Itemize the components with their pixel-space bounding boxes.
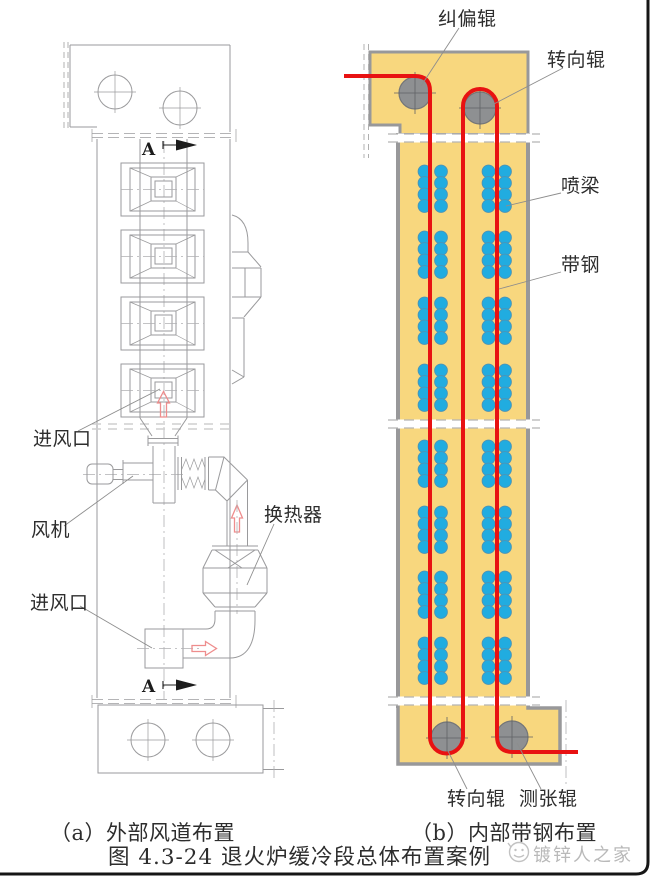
spray-nozzle-dot: [482, 200, 495, 213]
spray-nozzle-dot: [499, 177, 512, 190]
spray-nozzle-dot: [435, 165, 448, 178]
spray-nozzle-dot: [482, 309, 495, 322]
spray-nozzle-dot: [482, 440, 495, 453]
section-a-label: A: [141, 677, 156, 697]
continuation-dashes: [364, 44, 369, 158]
spray-nozzle-dot: [482, 518, 495, 531]
spray-nozzle-dot: [499, 188, 512, 201]
spray-nozzle-dot: [435, 463, 448, 476]
section-arrowhead: [176, 680, 197, 691]
bottom-header-box: [92, 695, 284, 780]
spray-nozzle-dot: [499, 475, 512, 488]
spray-nozzle-dot: [482, 672, 495, 685]
spray-nozzle-dot: [435, 309, 448, 322]
flow-arrow-right: [192, 642, 217, 656]
spray-nozzle-dot: [435, 660, 448, 673]
spray-nozzle-dot: [435, 440, 448, 453]
spray-nozzle-dot: [499, 399, 512, 412]
spray-nozzle-dot: [482, 475, 495, 488]
nozzle-box: [121, 297, 204, 350]
spray-nozzle-dot: [499, 200, 512, 213]
fan: [83, 460, 184, 484]
spray-nozzle-dot: [435, 320, 448, 333]
spray-nozzle-dot: [435, 266, 448, 279]
spray-nozzle-dot: [482, 297, 495, 310]
watermark-logo-icon: [510, 843, 529, 862]
spray-nozzle-dot: [482, 177, 495, 190]
spray-nozzle-dot: [499, 506, 512, 519]
spray-nozzle-dot: [499, 376, 512, 389]
hopper-funnel: [140, 418, 187, 503]
flange-joint: [92, 134, 236, 138]
spray-nozzle-dot: [435, 594, 448, 607]
spray-nozzle-dot: [482, 376, 495, 389]
spray-nozzle-dot: [482, 231, 495, 244]
spray-nozzle-dot: [499, 463, 512, 476]
continuation-dashes: [64, 42, 68, 130]
air-inlet-top-label: 进风口: [33, 428, 92, 450]
leader-line: [80, 606, 152, 648]
spray-nozzle-dot: [435, 583, 448, 596]
spray-nozzle-dot: [435, 177, 448, 190]
spray-nozzle-dot: [435, 254, 448, 267]
spray-nozzle-dot: [435, 376, 448, 389]
spray-nozzle-dot: [499, 364, 512, 377]
duct-walls: [92, 139, 236, 699]
fan-casing: [123, 463, 153, 480]
spray-nozzle-dot: [482, 452, 495, 465]
spray-nozzle-dot: [482, 660, 495, 673]
spray-nozzle-dot: [435, 452, 448, 465]
labels-a: 进风口 风机 换热器 进风口: [30, 389, 323, 648]
diagram-svg: A A 进风口 风机: [0, 0, 650, 881]
flow-arrow-up: [158, 392, 170, 418]
spray-nozzle-dot: [482, 387, 495, 400]
spray-nozzle-dot: [499, 332, 512, 345]
nozzle-boxes: [121, 163, 204, 417]
correction-roller-label: 纠偏辊: [438, 8, 497, 30]
furnace-bottom-header: [398, 700, 560, 764]
spray-nozzle-dot: [482, 188, 495, 201]
spray-nozzle-dot: [482, 506, 495, 519]
section-marker-top: A: [141, 140, 197, 161]
spray-nozzle-dot: [482, 606, 495, 619]
heat-exchanger: [183, 546, 267, 658]
spray-nozzle-dot: [499, 583, 512, 596]
spray-nozzle-dot: [435, 606, 448, 619]
spray-nozzle-dot: [499, 529, 512, 542]
spray-nozzle-dot: [499, 254, 512, 267]
spray-nozzle-dot: [482, 165, 495, 178]
tension-roller-label: 测张辊: [519, 788, 578, 810]
fan-motor: [87, 464, 113, 484]
figure-title: 图 4.3-24 退火炉缓冷段总体布置案例: [108, 845, 491, 870]
spray-nozzle-dot: [499, 297, 512, 310]
turn-roller-bottom-label: 转向辊: [447, 788, 506, 810]
spray-nozzle-dot: [499, 165, 512, 178]
spray-nozzle-dot: [482, 399, 495, 412]
spray-nozzle-dot: [482, 364, 495, 377]
spray-nozzle-dot: [499, 452, 512, 465]
spray-nozzle-dot: [482, 332, 495, 345]
spray-beam-label: 喷梁: [561, 175, 600, 197]
spray-nozzle-dot: [499, 541, 512, 554]
spray-nozzle-dot: [499, 606, 512, 619]
spray-nozzle-dot: [499, 649, 512, 662]
strip-steel-path: [344, 76, 578, 754]
internal-strip-diagram: 纠偏辊 转向辊 喷梁 带钢 转向辊 测张辊: [344, 8, 606, 810]
spray-nozzle-dot: [482, 266, 495, 279]
spray-nozzle-dot: [499, 320, 512, 333]
spray-nozzle-dot: [499, 243, 512, 256]
spray-nozzle-dot: [435, 387, 448, 400]
spray-nozzle-dot: [482, 320, 495, 333]
nozzle-box: [121, 364, 204, 417]
leader-line: [247, 524, 274, 585]
spray-nozzle-dot: [435, 243, 448, 256]
elbow-duct: [209, 457, 248, 614]
furnace-top-header: [370, 52, 528, 135]
spray-nozzle-dot: [482, 649, 495, 662]
spray-nozzle-dot: [435, 541, 448, 554]
spray-nozzle-dot: [435, 364, 448, 377]
fan-label: 风机: [31, 519, 70, 541]
spray-nozzle-dot: [435, 571, 448, 584]
spray-nozzle-dot: [499, 660, 512, 673]
mid-flange-joint: [92, 424, 236, 429]
spray-nozzle-dot: [435, 188, 448, 201]
caption-b: （b）内部带钢布置: [411, 821, 597, 845]
spray-nozzle-dot: [499, 518, 512, 531]
bottom-inlet-box: [137, 629, 217, 668]
spray-nozzle-dot: [435, 637, 448, 650]
spray-nozzle-dot: [499, 231, 512, 244]
spray-nozzle-dot: [435, 649, 448, 662]
external-air-duct-diagram: A A 进风口 风机: [30, 42, 323, 780]
spray-nozzle-dot: [482, 571, 495, 584]
spray-nozzle-dot: [499, 440, 512, 453]
spray-nozzle-dot: [499, 387, 512, 400]
strip-steel-label: 带钢: [561, 254, 600, 276]
bellows-joint: [178, 457, 209, 490]
spray-nozzle-dot: [499, 637, 512, 650]
side-duct-profile: [232, 215, 261, 384]
spray-nozzle-dot: [435, 475, 448, 488]
spray-nozzle-dot: [482, 529, 495, 542]
spray-nozzle-dot: [482, 243, 495, 256]
spray-nozzle-dot: [435, 231, 448, 244]
spray-nozzle-dot: [482, 541, 495, 554]
turn-roller-top-label: 转向辊: [547, 49, 606, 71]
air-inlet-bottom-label: 进风口: [30, 592, 89, 614]
spray-nozzle-dot: [499, 309, 512, 322]
figure-canvas: A A 进风口 风机: [0, 0, 650, 881]
heat-exchanger-label: 换热器: [264, 504, 323, 526]
caption-a: （a）外部风道布置: [50, 821, 235, 845]
spray-nozzle-dot: [435, 297, 448, 310]
spray-nozzle-dot: [435, 332, 448, 345]
section-marker-bottom: A: [141, 677, 197, 697]
spray-nozzle-dot: [482, 463, 495, 476]
spray-nozzle-dot: [435, 529, 448, 542]
spray-nozzle-dot: [499, 266, 512, 279]
spray-nozzle-dot: [435, 518, 448, 531]
top-header-box: [64, 42, 236, 142]
spray-nozzle-dot: [499, 672, 512, 685]
nozzle-box: [121, 230, 204, 283]
spray-nozzle-dot: [435, 506, 448, 519]
spray-nozzle-dot: [499, 594, 512, 607]
spray-nozzle-dot: [435, 200, 448, 213]
spray-nozzle-dot: [482, 637, 495, 650]
spray-nozzle-dot: [435, 399, 448, 412]
spray-nozzle-dot: [435, 672, 448, 685]
spray-nozzle-dot: [482, 583, 495, 596]
watermark: 镀锌人之家: [508, 843, 633, 867]
spray-nozzle-dot: [482, 254, 495, 267]
section-a-label: A: [141, 140, 156, 160]
watermark-text: 镀锌人之家: [533, 845, 633, 866]
spray-nozzle-dot: [482, 594, 495, 607]
spray-nozzle-dot: [499, 571, 512, 584]
nozzle-box: [121, 163, 204, 216]
